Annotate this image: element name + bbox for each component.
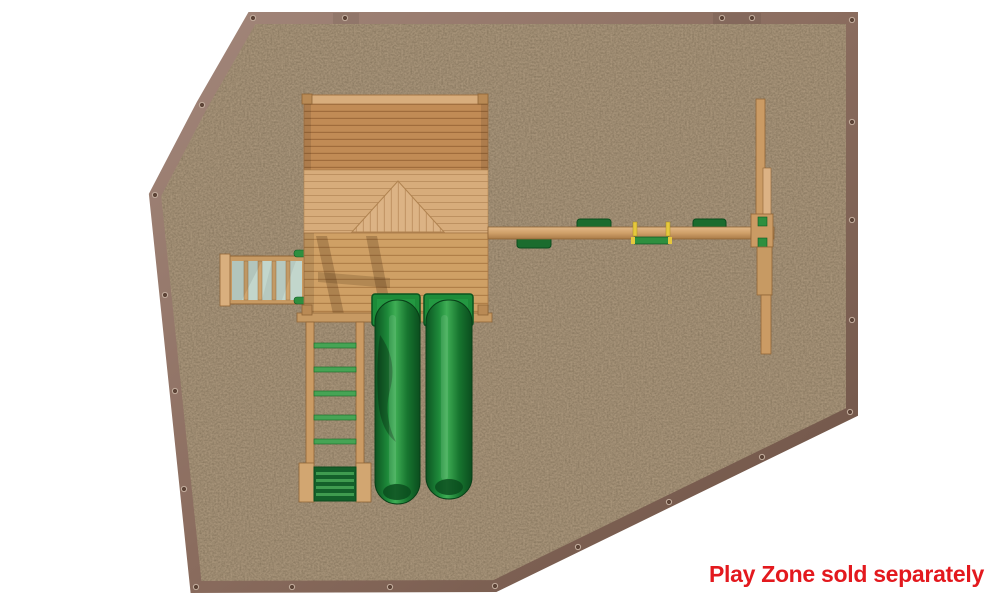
fort-roof (304, 104, 488, 170)
monkey-bar-end-post (299, 463, 314, 502)
border-rivet (666, 499, 671, 504)
border-rivet (749, 15, 754, 20)
aframe-leg (761, 295, 771, 354)
product-image: Play Zone sold separately (0, 0, 1000, 606)
monkey-bar-rail (356, 322, 364, 468)
monkey-bar-rail (306, 322, 314, 468)
corner-post (302, 305, 312, 315)
glider-swing-bar (633, 237, 670, 244)
access-ladder-rung (316, 479, 354, 482)
monkey-bar-rung (314, 343, 356, 348)
border-rivet (199, 102, 204, 107)
border-rivet (181, 486, 186, 491)
border-rivet (719, 15, 724, 20)
border-rivet (342, 15, 347, 20)
deck-edge-shade (304, 233, 314, 314)
monkey-bar-end-post (356, 463, 371, 502)
corner-post (478, 305, 488, 315)
corner-post (478, 94, 488, 104)
fort (297, 94, 492, 322)
roof-eave-shade (304, 104, 311, 170)
border-rivet (849, 217, 854, 222)
corner-post (302, 94, 312, 104)
border-rivet (250, 15, 255, 20)
slide-exit-right (435, 479, 463, 495)
glider-pivot (633, 222, 637, 236)
monkey-bar-rung (314, 391, 356, 396)
monkey-bar-rung (314, 415, 356, 420)
swing-hanger (758, 217, 767, 226)
roof-eave-shade (481, 104, 488, 170)
border-rivet (575, 544, 580, 549)
glider-handle (668, 237, 672, 244)
glider-pivot (666, 222, 670, 236)
monkey-bar-rung (314, 439, 356, 444)
aframe-brace (763, 168, 771, 216)
border-rivet (162, 292, 167, 297)
access-ladder-rung (316, 472, 354, 475)
caption-text: Play Zone sold separately (709, 561, 984, 588)
play-zone-render (0, 0, 1000, 606)
climbing-ramp (220, 250, 307, 306)
slide-highlight (389, 315, 396, 485)
border-rivet (759, 454, 764, 459)
border-rivet (387, 584, 392, 589)
access-ladder-rung (316, 486, 354, 489)
border-rivet (849, 119, 854, 124)
border-rivet (152, 192, 157, 197)
border-rivet (172, 388, 177, 393)
access-ladder-rung (316, 493, 354, 496)
monkey-bar-rung (314, 367, 356, 372)
border-rivet (849, 17, 854, 22)
border-rivet (847, 409, 852, 414)
border-rivet (289, 584, 294, 589)
aframe-leg (757, 247, 772, 295)
green-slide-right (426, 300, 472, 499)
ramp-end-rail (220, 254, 230, 306)
border-rivet (492, 583, 497, 588)
border-rivet (849, 317, 854, 322)
glider-handle (631, 237, 635, 244)
slide-exit-left (383, 484, 411, 500)
border-rivet (193, 584, 198, 589)
slide-highlight (441, 315, 448, 480)
swing-hanger (758, 238, 767, 248)
